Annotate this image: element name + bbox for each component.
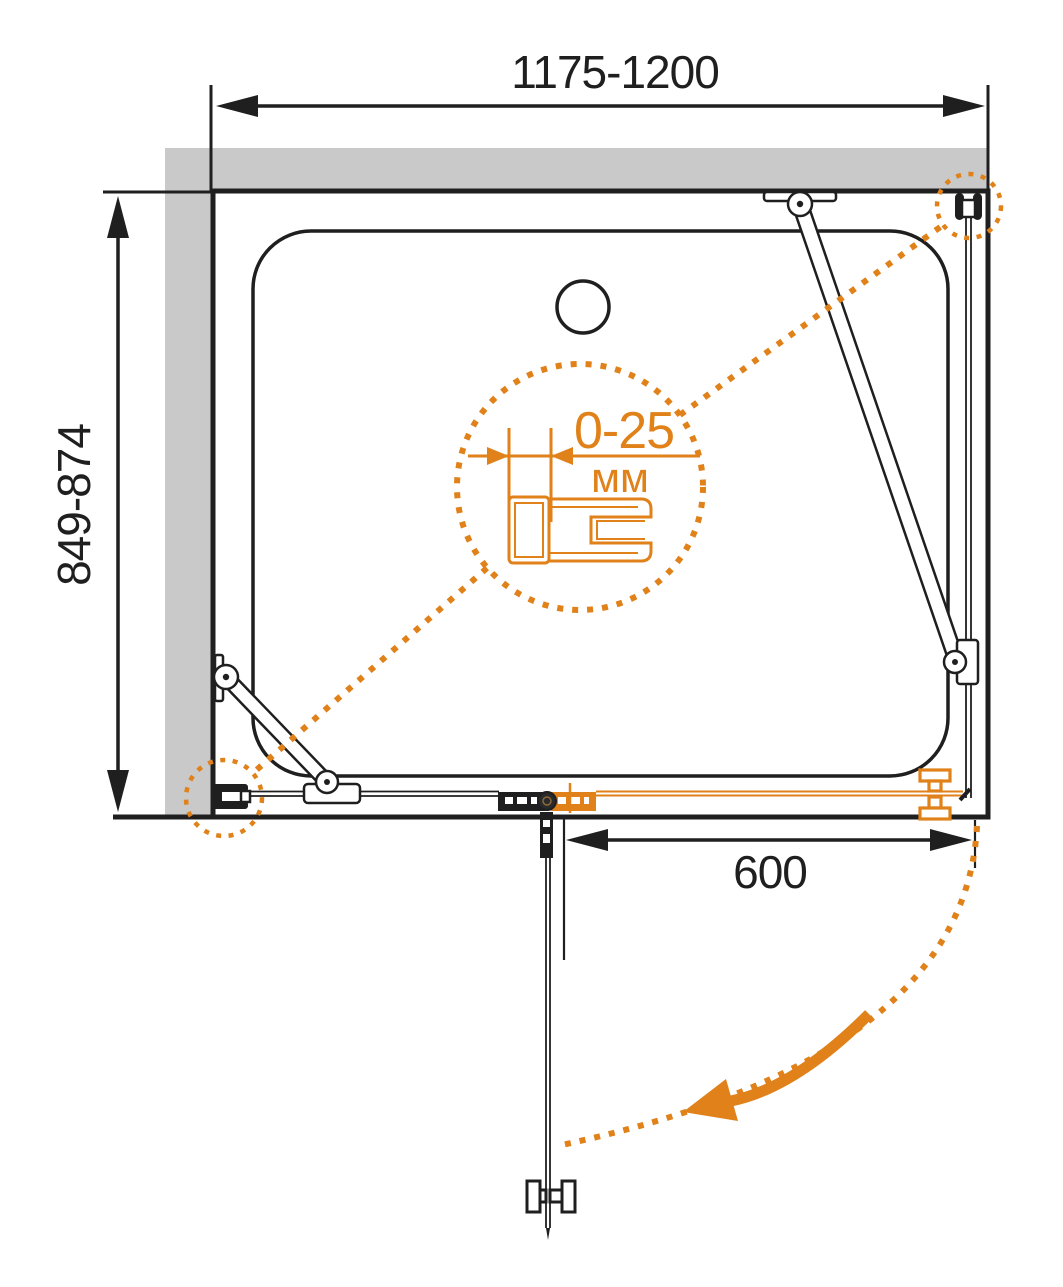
handle-stem bbox=[929, 781, 941, 791]
profile-slot bbox=[543, 820, 550, 827]
dimension-depth-label: 849-874 bbox=[48, 424, 100, 586]
pivot-dot bbox=[797, 201, 803, 207]
handle-flange bbox=[527, 1181, 540, 1212]
adjustment-range-label: 0-25 bbox=[574, 402, 674, 460]
handle-stem bbox=[929, 797, 941, 808]
dimension-door-label: 600 bbox=[733, 846, 807, 898]
profile-slot bbox=[570, 797, 580, 804]
handle-flange bbox=[920, 770, 950, 781]
pivot-dot bbox=[324, 779, 330, 785]
clamp-block bbox=[962, 200, 975, 217]
pivot-hinge bbox=[538, 792, 556, 810]
profile-slot bbox=[531, 797, 537, 804]
pivot-dot bbox=[223, 674, 229, 680]
drain-hole bbox=[557, 281, 609, 333]
pivot-dot bbox=[952, 659, 958, 665]
wall-profile-slot bbox=[241, 791, 250, 802]
handle-stem bbox=[550, 1190, 562, 1202]
wall-top bbox=[165, 148, 988, 191]
wall-profile-back bbox=[214, 784, 222, 809]
profile-slot bbox=[517, 797, 527, 804]
diagram-canvas: 1175-1200 849-874 bbox=[0, 0, 1063, 1287]
adjustment-unit-label: мм bbox=[591, 454, 649, 501]
profile-slot bbox=[505, 797, 513, 804]
dimension-width-label: 1175-1200 bbox=[511, 46, 719, 98]
handle-flange bbox=[920, 808, 950, 819]
wall-left bbox=[165, 148, 213, 815]
handle-stem bbox=[540, 1190, 546, 1202]
profile-slot bbox=[584, 797, 589, 804]
profile-slot bbox=[558, 797, 566, 804]
handle-flange bbox=[562, 1181, 575, 1212]
profile-slot bbox=[543, 834, 550, 843]
